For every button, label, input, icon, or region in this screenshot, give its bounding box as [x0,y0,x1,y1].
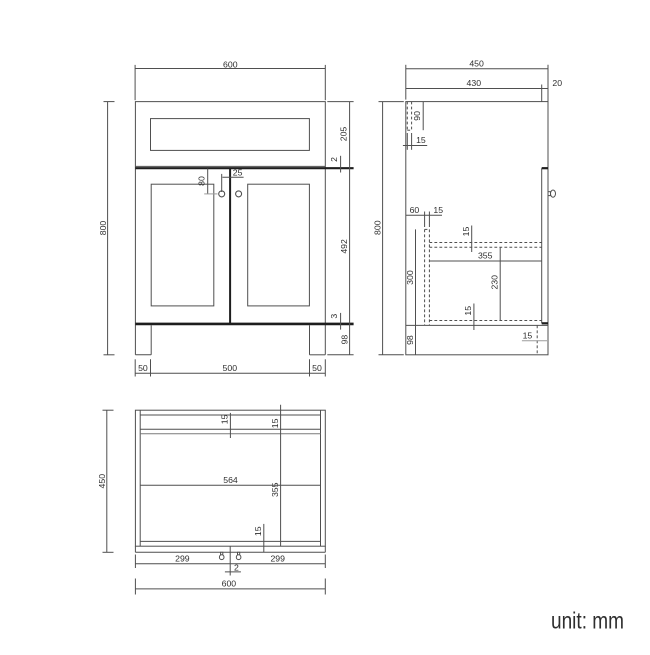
svg-text:15: 15 [461,227,471,237]
svg-text:unit: mm: unit: mm [551,608,624,634]
svg-text:3: 3 [329,314,339,319]
svg-text:80: 80 [197,176,207,186]
svg-text:15: 15 [416,135,426,145]
svg-text:300: 300 [405,270,415,285]
svg-text:299: 299 [270,553,285,563]
svg-text:50: 50 [138,363,148,373]
svg-text:230: 230 [489,275,499,290]
svg-text:492: 492 [339,239,349,254]
svg-text:25: 25 [233,167,243,177]
svg-text:98: 98 [339,335,349,345]
svg-text:98: 98 [405,335,415,345]
svg-text:800: 800 [372,220,382,235]
svg-text:20: 20 [552,78,562,88]
svg-text:15: 15 [433,205,443,215]
svg-text:205: 205 [339,127,349,142]
svg-text:15: 15 [253,526,263,536]
svg-text:450: 450 [97,474,107,489]
svg-text:355: 355 [478,251,493,261]
svg-text:800: 800 [98,221,108,236]
svg-text:15: 15 [523,330,533,340]
svg-text:2: 2 [329,157,339,162]
svg-text:430: 430 [467,78,482,88]
svg-text:15: 15 [463,306,473,316]
svg-text:600: 600 [222,579,237,589]
svg-text:500: 500 [223,363,238,373]
svg-text:2: 2 [234,563,239,573]
svg-text:299: 299 [175,553,190,563]
svg-text:90: 90 [412,111,422,121]
svg-text:50: 50 [312,363,322,373]
svg-text:450: 450 [469,59,484,69]
svg-text:15: 15 [220,414,230,424]
svg-text:564: 564 [223,475,238,485]
svg-text:15: 15 [270,418,280,428]
svg-text:600: 600 [223,59,238,69]
svg-text:355: 355 [270,482,280,497]
svg-text:60: 60 [410,205,420,215]
